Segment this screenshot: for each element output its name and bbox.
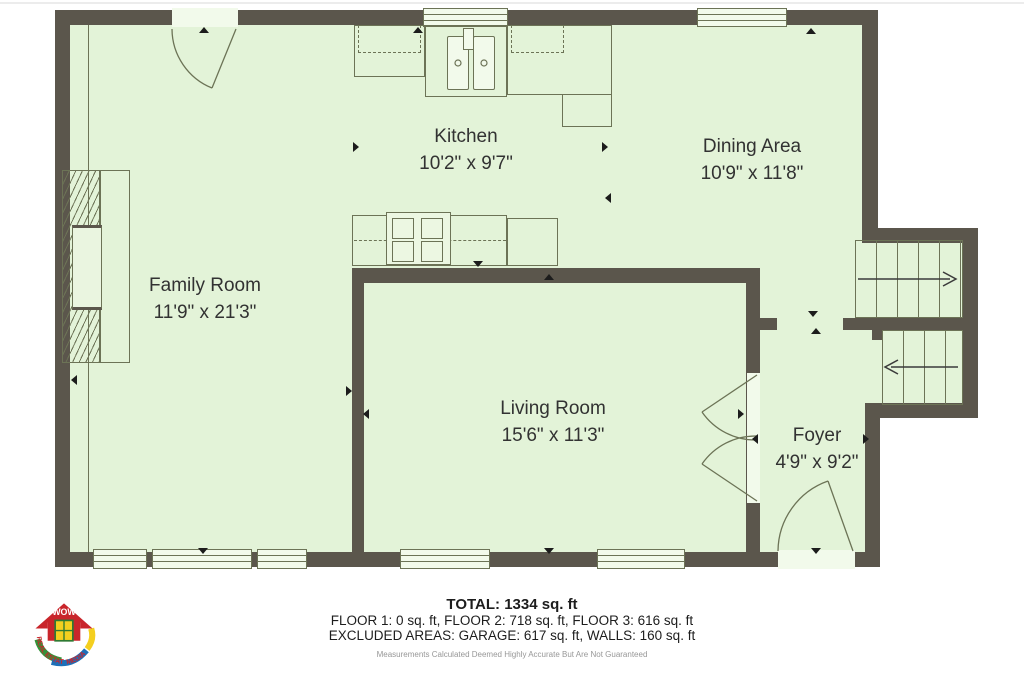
burner: [392, 218, 414, 239]
measure-marker: [863, 434, 869, 444]
wall-foyer-right: [865, 403, 880, 567]
window-dining: [697, 8, 787, 27]
room-dims: 11'9" x 21'3": [149, 299, 261, 326]
wall-stair-middle: [843, 318, 978, 330]
burner: [421, 241, 443, 262]
measure-marker: [71, 375, 77, 385]
measure-marker: [806, 28, 816, 34]
window-family-3: [257, 549, 307, 569]
room-label-dining: Dining Area 10'9" x 11'8": [701, 133, 804, 187]
measure-marker: [199, 27, 209, 33]
window-living-1: [400, 549, 490, 569]
staircase-up: [855, 240, 963, 318]
upper-cabinets-dashed: [358, 25, 421, 53]
top-border: [0, 2, 1024, 4]
measure-marker: [738, 409, 744, 419]
summary: TOTAL: 1334 sq. ft FLOOR 1: 0 sq. ft, FL…: [0, 596, 1024, 659]
measure-marker: [363, 409, 369, 419]
fireplace-hearth: [100, 170, 130, 363]
room-name: Kitchen: [419, 123, 513, 150]
measure-marker: [544, 548, 554, 554]
room-dims: 4'9" x 9'2": [775, 449, 858, 476]
window-living-2: [597, 549, 685, 569]
logo-wow-text: WOW: [52, 607, 76, 617]
wall-hall-stub: [746, 318, 777, 330]
wall-livingroom-top: [352, 268, 760, 283]
sink-basin: [473, 36, 495, 90]
measure-marker: [602, 142, 608, 152]
window-family-1: [93, 549, 147, 569]
measure-marker: [346, 386, 352, 396]
real-estate-media-logo: WOW REAL ESTATE MEDIA: [30, 600, 98, 668]
room-dims: 15'6" x 11'3": [500, 422, 606, 449]
wall-stair-notch: [872, 330, 882, 340]
faucet: [463, 28, 474, 50]
room-dims: 10'9" x 11'8": [701, 160, 804, 187]
dishwasher-counter: [507, 218, 558, 266]
measure-marker: [605, 193, 611, 203]
measure-marker: [544, 274, 554, 280]
measure-marker: [353, 142, 359, 152]
summary-excluded: EXCLUDED AREAS: GARAGE: 617 sq. ft, WALL…: [0, 628, 1024, 643]
summary-floors: FLOOR 1: 0 sq. ft, FLOOR 2: 718 sq. ft, …: [0, 613, 1024, 628]
room-name: Family Room: [149, 272, 261, 299]
measure-marker: [473, 261, 483, 267]
measure-marker: [811, 548, 821, 554]
burner: [392, 241, 414, 262]
fireplace-firebox: [72, 225, 102, 310]
measure-marker: [808, 311, 818, 317]
measure-marker: [752, 434, 758, 444]
room-name: Foyer: [775, 422, 858, 449]
wall-dining-right: [862, 10, 878, 243]
room-label-living: Living Room 15'6" x 11'3": [500, 395, 606, 449]
kitchen-counter-return: [562, 94, 612, 127]
measure-marker: [413, 27, 423, 33]
room-dims: 10'2" x 9'7": [419, 150, 513, 177]
summary-total: TOTAL: 1334 sq. ft: [0, 596, 1024, 613]
measure-marker: [811, 328, 821, 334]
room-label-kitchen: Kitchen 10'2" x 9'7": [419, 123, 513, 177]
room-name: Dining Area: [701, 133, 804, 160]
staircase-down: [882, 330, 963, 405]
measure-marker: [198, 548, 208, 554]
door-opening-family-top: [172, 8, 238, 27]
summary-disclaimer: Measurements Calculated Deemed Highly Ac…: [0, 650, 1024, 659]
room-label-family: Family Room 11'9" x 21'3": [149, 272, 261, 326]
floorplan-page: { "rooms": [ {"name": "Kitchen", "dims":…: [0, 0, 1024, 681]
room-label-foyer: Foyer 4'9" x 9'2": [775, 422, 858, 476]
wall-stair-bottom: [865, 403, 978, 418]
upper-cabinets-dashed: [511, 25, 564, 53]
burner: [421, 218, 443, 239]
room-name: Living Room: [500, 395, 606, 422]
